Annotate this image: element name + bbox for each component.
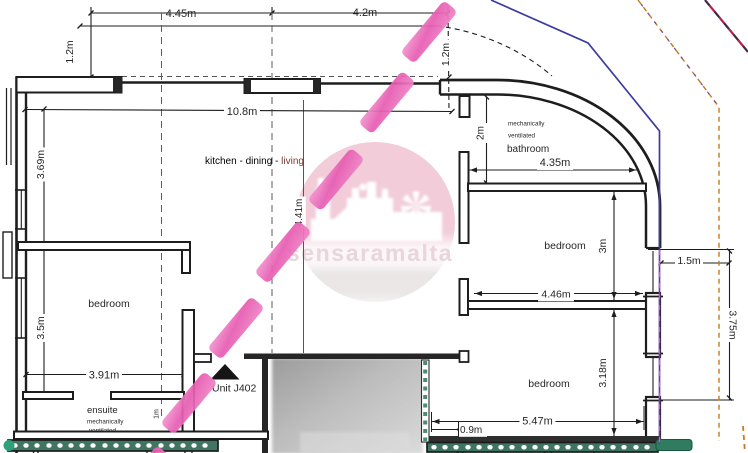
svg-text:Unit J402: Unit J402 bbox=[212, 383, 257, 395]
svg-text:3.18m: 3.18m bbox=[597, 358, 609, 387]
svg-text:3.91m: 3.91m bbox=[89, 370, 120, 382]
svg-text:3.5m: 3.5m bbox=[35, 316, 47, 340]
svg-text:3.69m: 3.69m bbox=[35, 150, 47, 179]
svg-text:4.2m: 4.2m bbox=[353, 7, 377, 19]
svg-text:bedroom: bedroom bbox=[88, 298, 130, 310]
svg-text:1.2m: 1.2m bbox=[64, 40, 76, 64]
svg-text:10.8m: 10.8m bbox=[227, 106, 258, 118]
svg-text:1m: 1m bbox=[154, 409, 161, 419]
svg-text:ventilated: ventilated bbox=[89, 428, 116, 435]
svg-text:1.5m: 1.5m bbox=[677, 255, 701, 267]
svg-text:bedroom: bedroom bbox=[544, 240, 586, 252]
svg-text:4.46m: 4.46m bbox=[541, 289, 570, 301]
svg-text:kitchen - dining - living: kitchen - dining - living bbox=[205, 156, 304, 167]
svg-text:ensuite: ensuite bbox=[87, 405, 118, 416]
svg-text:ventilated: ventilated bbox=[508, 133, 535, 140]
svg-text:4.41m: 4.41m bbox=[294, 199, 305, 227]
svg-text:5.47m: 5.47m bbox=[522, 416, 553, 428]
svg-text:2m: 2m bbox=[476, 126, 487, 140]
svg-text:mechanically: mechanically bbox=[508, 121, 545, 128]
svg-text:bedroom: bedroom bbox=[528, 378, 570, 390]
svg-text:mechanically: mechanically bbox=[87, 419, 124, 426]
svg-text:3m: 3m bbox=[597, 238, 609, 253]
svg-text:1.2m: 1.2m bbox=[440, 43, 452, 67]
svg-text:sensaramalta: sensaramalta bbox=[287, 240, 453, 266]
svg-text:3.75m: 3.75m bbox=[727, 310, 739, 339]
svg-text:bathroom: bathroom bbox=[507, 144, 549, 155]
svg-text:4.35m: 4.35m bbox=[540, 157, 571, 169]
svg-text:4.45m: 4.45m bbox=[166, 8, 197, 20]
svg-text:0.9m: 0.9m bbox=[460, 425, 482, 436]
